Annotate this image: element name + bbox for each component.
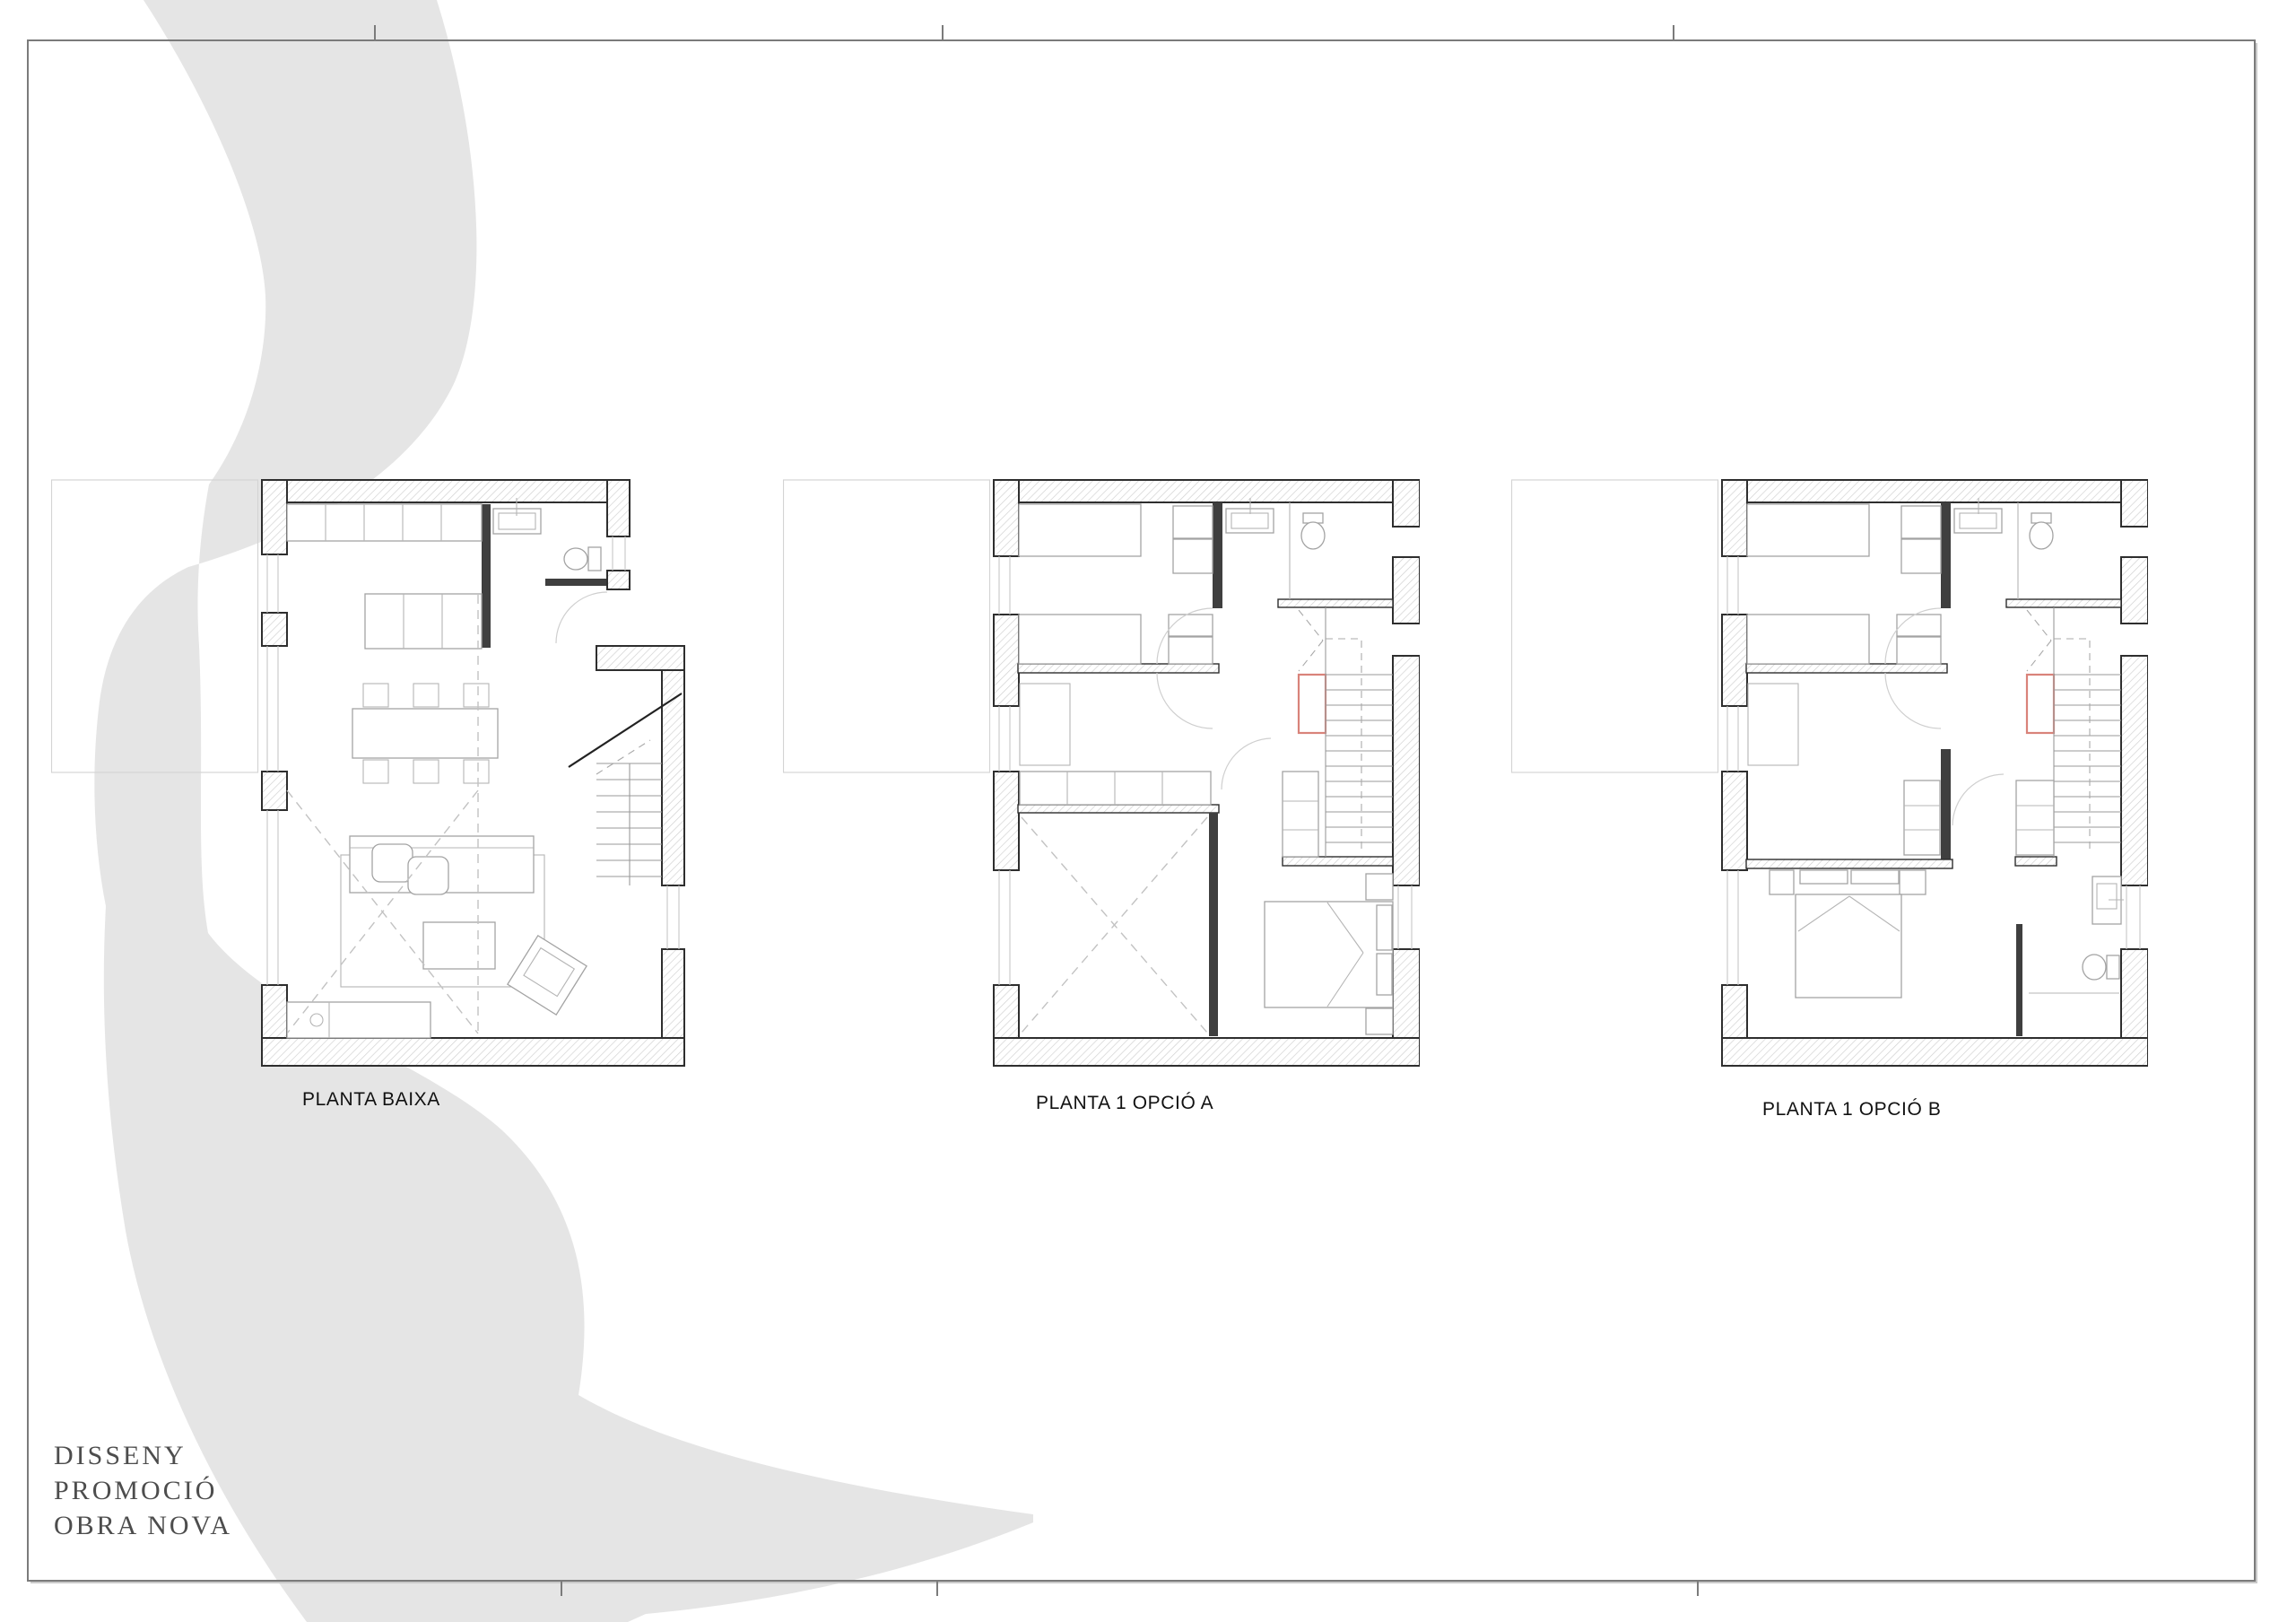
stair-red-marker (2027, 675, 2054, 733)
bed (1019, 504, 1141, 556)
toilet (2107, 955, 2119, 979)
floor-plan-planta-1-opcio-b (1511, 478, 2148, 1084)
bathroom (493, 498, 607, 643)
stair-wardrobe (1283, 772, 1318, 857)
kitchen-lower-counter (287, 1002, 430, 1038)
floor-plan-planta-1-opcio-a (783, 478, 1420, 1084)
neighbor-parcel (784, 480, 990, 772)
brand-text: DISSENY PROMOCIÓ OBRA NOVA (54, 1438, 232, 1543)
master-bedroom (1265, 874, 1393, 1034)
stair-red-marker (1299, 675, 1326, 733)
bedroom-1 (1019, 504, 1213, 573)
desk (1748, 684, 1798, 765)
bedroom-2 (1747, 615, 1941, 855)
desk (1020, 684, 1070, 765)
fold-mark-bottom-1 (561, 1582, 562, 1596)
fold-mark-bottom-2 (936, 1582, 938, 1596)
brand-line: PROMOCIÓ (54, 1473, 232, 1508)
bedroom-2 (1019, 615, 1213, 805)
stair-wardrobe (2016, 780, 2054, 855)
toilet (588, 547, 601, 571)
brand-line: DISSENY (54, 1438, 232, 1473)
stairs (1283, 607, 1393, 857)
coffee-table (423, 922, 495, 969)
kitchen-island (365, 594, 482, 649)
fold-mark-bottom-3 (1697, 1582, 1699, 1596)
sofa-cushion (372, 844, 413, 882)
door-arc (556, 592, 607, 643)
exterior-walls (262, 480, 684, 1066)
bed (1796, 894, 1901, 998)
toilet (1303, 513, 1323, 523)
kitchen-counter (287, 504, 482, 541)
armchair (508, 936, 587, 1015)
bed (1019, 615, 1141, 664)
plan-label-planta-1-opcio-b: PLANTA 1 OPCIÓ B (1762, 1099, 1941, 1121)
floor-plan-planta-baixa (51, 478, 688, 1084)
toilet (2031, 513, 2051, 523)
void-dashed-cross (1022, 817, 1207, 1033)
brand-line: OBRA NOVA (54, 1508, 232, 1543)
bath-partition (2016, 924, 2022, 1036)
fold-mark-top-3 (1673, 25, 1674, 39)
dining-table-chairs (352, 684, 498, 783)
bathroom-top (1954, 498, 2053, 599)
neighbor-parcel (52, 480, 258, 772)
stairs (2016, 607, 2121, 857)
fold-mark-top-2 (942, 25, 944, 39)
neighbor-parcel (1512, 480, 1718, 772)
bed (1265, 902, 1393, 1007)
fold-mark-top-1 (374, 25, 376, 39)
bed (1747, 615, 1869, 664)
bedroom-1 (1747, 504, 1941, 573)
plan-label-planta-baixa: PLANTA BAIXA (302, 1089, 440, 1111)
wardrobe (1904, 780, 1940, 855)
living-room (341, 836, 587, 1015)
master-bedroom (1770, 870, 1926, 998)
sofa-cushion (408, 857, 448, 894)
plan-label-planta-1-opcio-a: PLANTA 1 OPCIÓ A (1036, 1093, 1213, 1114)
bathroom-bottom (2029, 876, 2124, 993)
bed (1747, 504, 1869, 556)
bathroom (1226, 498, 1325, 599)
